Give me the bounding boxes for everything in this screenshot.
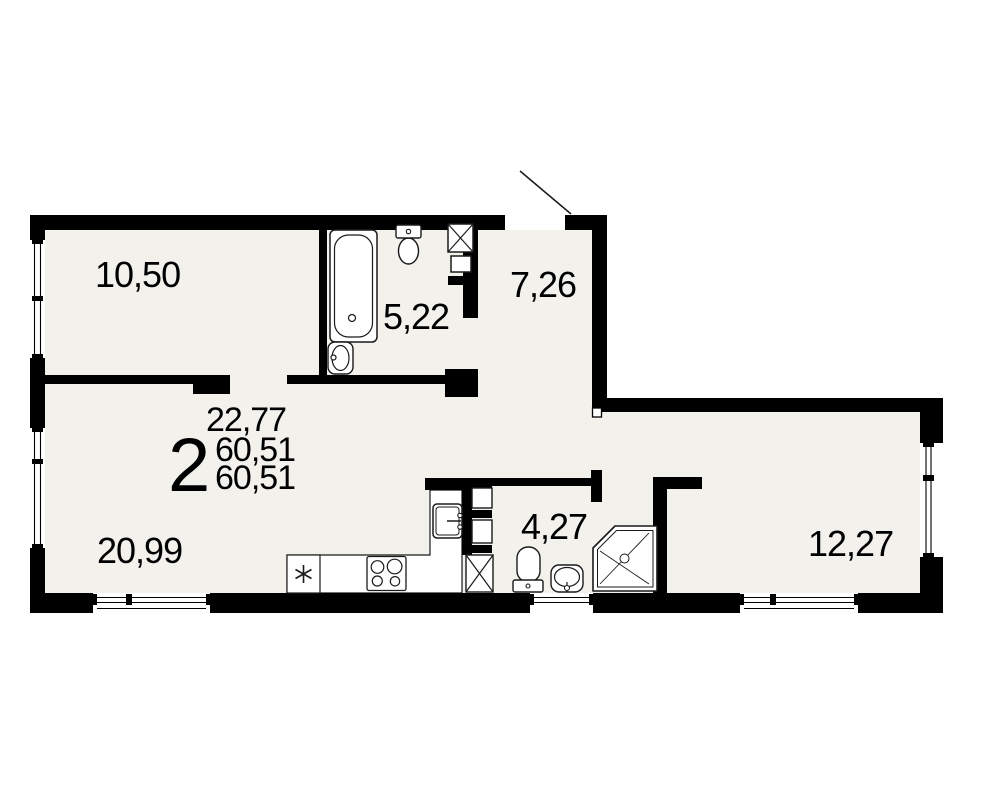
bathtub-icon (330, 230, 377, 342)
hallway-area-label: 7,26 (510, 264, 576, 305)
floor-plan: 10,50 5,22 7,26 20,99 4,27 12,27 2 22,77… (0, 0, 1000, 800)
wc-area-label: 4,27 (521, 506, 587, 547)
total-area-2-label: 60,51 (215, 459, 295, 497)
corner-marker (593, 408, 602, 417)
rooms-count-label: 2 (168, 423, 210, 508)
toilet-2-icon (513, 547, 543, 592)
washbasin-icon (328, 342, 353, 374)
stove-icon (367, 557, 406, 591)
window-room-right-side (920, 443, 943, 557)
kitchen-sink-icon (433, 504, 462, 538)
floor-plan-canvas: 10,50 5,22 7,26 20,99 4,27 12,27 2 22,77… (0, 0, 1000, 800)
door-swing-line (520, 171, 571, 214)
living-kitchen-area-label: 20,99 (97, 530, 182, 571)
window-room-right-bottom (740, 593, 858, 613)
room-top-left-area-label: 10,50 (95, 254, 180, 295)
fridge-icon (287, 555, 320, 593)
window-living-left (30, 428, 45, 548)
window-room-top-left (30, 240, 45, 358)
window-living-bottom (93, 593, 210, 613)
bathroom-area-label: 5,22 (383, 296, 449, 337)
room-right-area-label: 12,27 (808, 523, 893, 564)
toilet-icon (396, 225, 421, 264)
washbasin-2-icon (551, 565, 583, 592)
entrance-door (505, 171, 571, 230)
window-wc-bottom (530, 593, 593, 613)
